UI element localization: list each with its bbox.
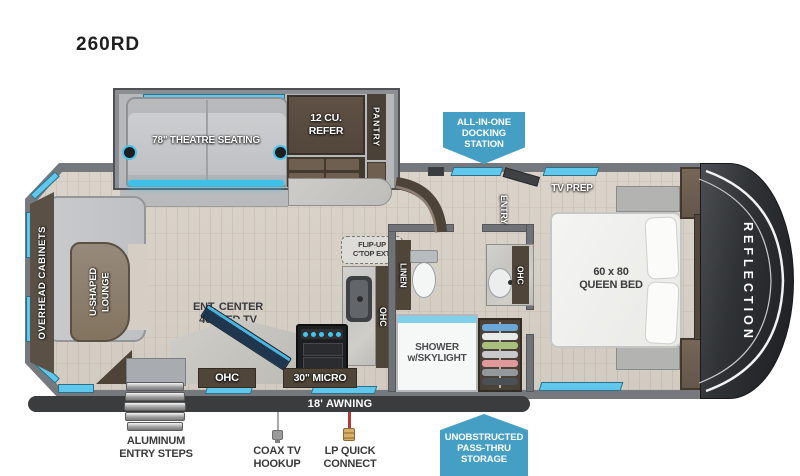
ohc-band-living: OHC bbox=[198, 368, 256, 388]
knob bbox=[319, 332, 324, 337]
entry-steps bbox=[124, 382, 188, 434]
reflection-brand: REFLECTION bbox=[737, 202, 759, 362]
knob bbox=[311, 332, 316, 337]
pantry: PANTRY bbox=[367, 94, 386, 160]
burner-grate bbox=[303, 343, 343, 356]
awning-label: 18' AWNING bbox=[285, 397, 395, 411]
pantry-label: PANTRY bbox=[372, 107, 382, 147]
refrigerator: 12 CU. REFER bbox=[287, 95, 365, 155]
ohc-bath-label: OHC bbox=[516, 266, 526, 284]
pass-thru-storage-callout: UNOBSTRUCTED PASS-THRU STORAGE bbox=[440, 414, 528, 476]
step bbox=[125, 392, 185, 401]
slide-out: 78" THEATRE SEATING 12 CU. REFER PANTRY bbox=[113, 88, 400, 190]
wardrobe bbox=[478, 318, 522, 392]
faucet-icon bbox=[357, 296, 363, 302]
bath-wall bbox=[526, 334, 534, 392]
overhead-cabinets-left: OVERHEAD CABINETS bbox=[30, 190, 54, 376]
toilet-icon bbox=[412, 262, 436, 298]
knob-bar bbox=[301, 329, 343, 339]
step bbox=[125, 412, 185, 421]
drawer bbox=[289, 159, 324, 170]
lp-connector-icon bbox=[343, 428, 355, 441]
shower-label: SHOWER w/SKYLIGHT bbox=[398, 338, 476, 368]
docking-station-panel bbox=[428, 167, 444, 176]
front-cap: REFLECTION bbox=[700, 163, 794, 399]
window bbox=[58, 384, 94, 393]
entry-area: ENTRY bbox=[496, 184, 512, 236]
window bbox=[539, 382, 624, 391]
skylight-band bbox=[398, 316, 476, 323]
step bbox=[127, 422, 183, 431]
bath-wall bbox=[388, 224, 396, 392]
bath-wall bbox=[388, 224, 454, 232]
docking-station-callout: ALL-IN-ONE DOCKING STATION bbox=[443, 112, 525, 164]
coax-label: COAX TV HOOKUP bbox=[230, 444, 324, 472]
window bbox=[543, 167, 600, 176]
step bbox=[124, 402, 186, 411]
overhead-cabinets-left-label: OVERHEAD CABINETS bbox=[37, 226, 48, 340]
floorplan-260rd: 260RD U-SHAPED LOUNGE OVERHEAD CABINETS … bbox=[0, 0, 800, 476]
clothes-item bbox=[482, 378, 518, 385]
knob bbox=[303, 332, 308, 337]
clothes-item bbox=[482, 342, 518, 349]
page-title: 260RD bbox=[76, 34, 140, 56]
drawer bbox=[326, 159, 359, 170]
lounge-table: U-SHAPED LOUNGE bbox=[70, 242, 130, 342]
tv-prep-label: TV PREP bbox=[544, 181, 600, 195]
stove bbox=[296, 324, 348, 372]
clothes-item bbox=[482, 369, 518, 376]
lounge-opening bbox=[128, 244, 148, 330]
window bbox=[451, 167, 504, 176]
linen-cabinet: LINEN bbox=[396, 240, 411, 310]
coax-stem bbox=[277, 412, 279, 431]
clothes-item bbox=[482, 351, 518, 358]
microwave-band: 30" MICRO bbox=[283, 368, 357, 388]
lp-stem bbox=[348, 412, 351, 429]
awning-bar bbox=[28, 396, 530, 412]
led-strip bbox=[128, 180, 284, 186]
lp-label: LP QUICK CONNECT bbox=[312, 444, 388, 472]
linen-label: LINEN bbox=[399, 263, 409, 288]
clothes-item bbox=[482, 333, 518, 340]
coax-connector-tip bbox=[275, 439, 280, 443]
knob bbox=[336, 332, 341, 337]
step bbox=[126, 382, 184, 391]
kitchen-peninsula-counter bbox=[288, 178, 392, 206]
reflection-label: REFLECTION bbox=[741, 222, 755, 342]
theatre-seating-label: 78" THEATRE SEATING bbox=[125, 130, 287, 150]
queen-bed-label: 60 x 80 QUEEN BED bbox=[556, 262, 666, 296]
shower: SHOWER w/SKYLIGHT bbox=[396, 314, 478, 392]
clothes-item bbox=[482, 360, 518, 367]
entry-label: ENTRY bbox=[499, 195, 509, 224]
awning-text: 18' AWNING bbox=[308, 398, 373, 410]
ohc-strip-bath: OHC bbox=[512, 246, 529, 304]
knob bbox=[328, 332, 333, 337]
steps-label: ALUMINUM ENTRY STEPS bbox=[96, 434, 216, 462]
ohc-kitchen-label: OHC bbox=[378, 307, 388, 326]
nightstand bbox=[616, 186, 680, 212]
lounge-label: U-SHAPED LOUNGE bbox=[88, 268, 113, 316]
clothes-item bbox=[482, 324, 518, 331]
